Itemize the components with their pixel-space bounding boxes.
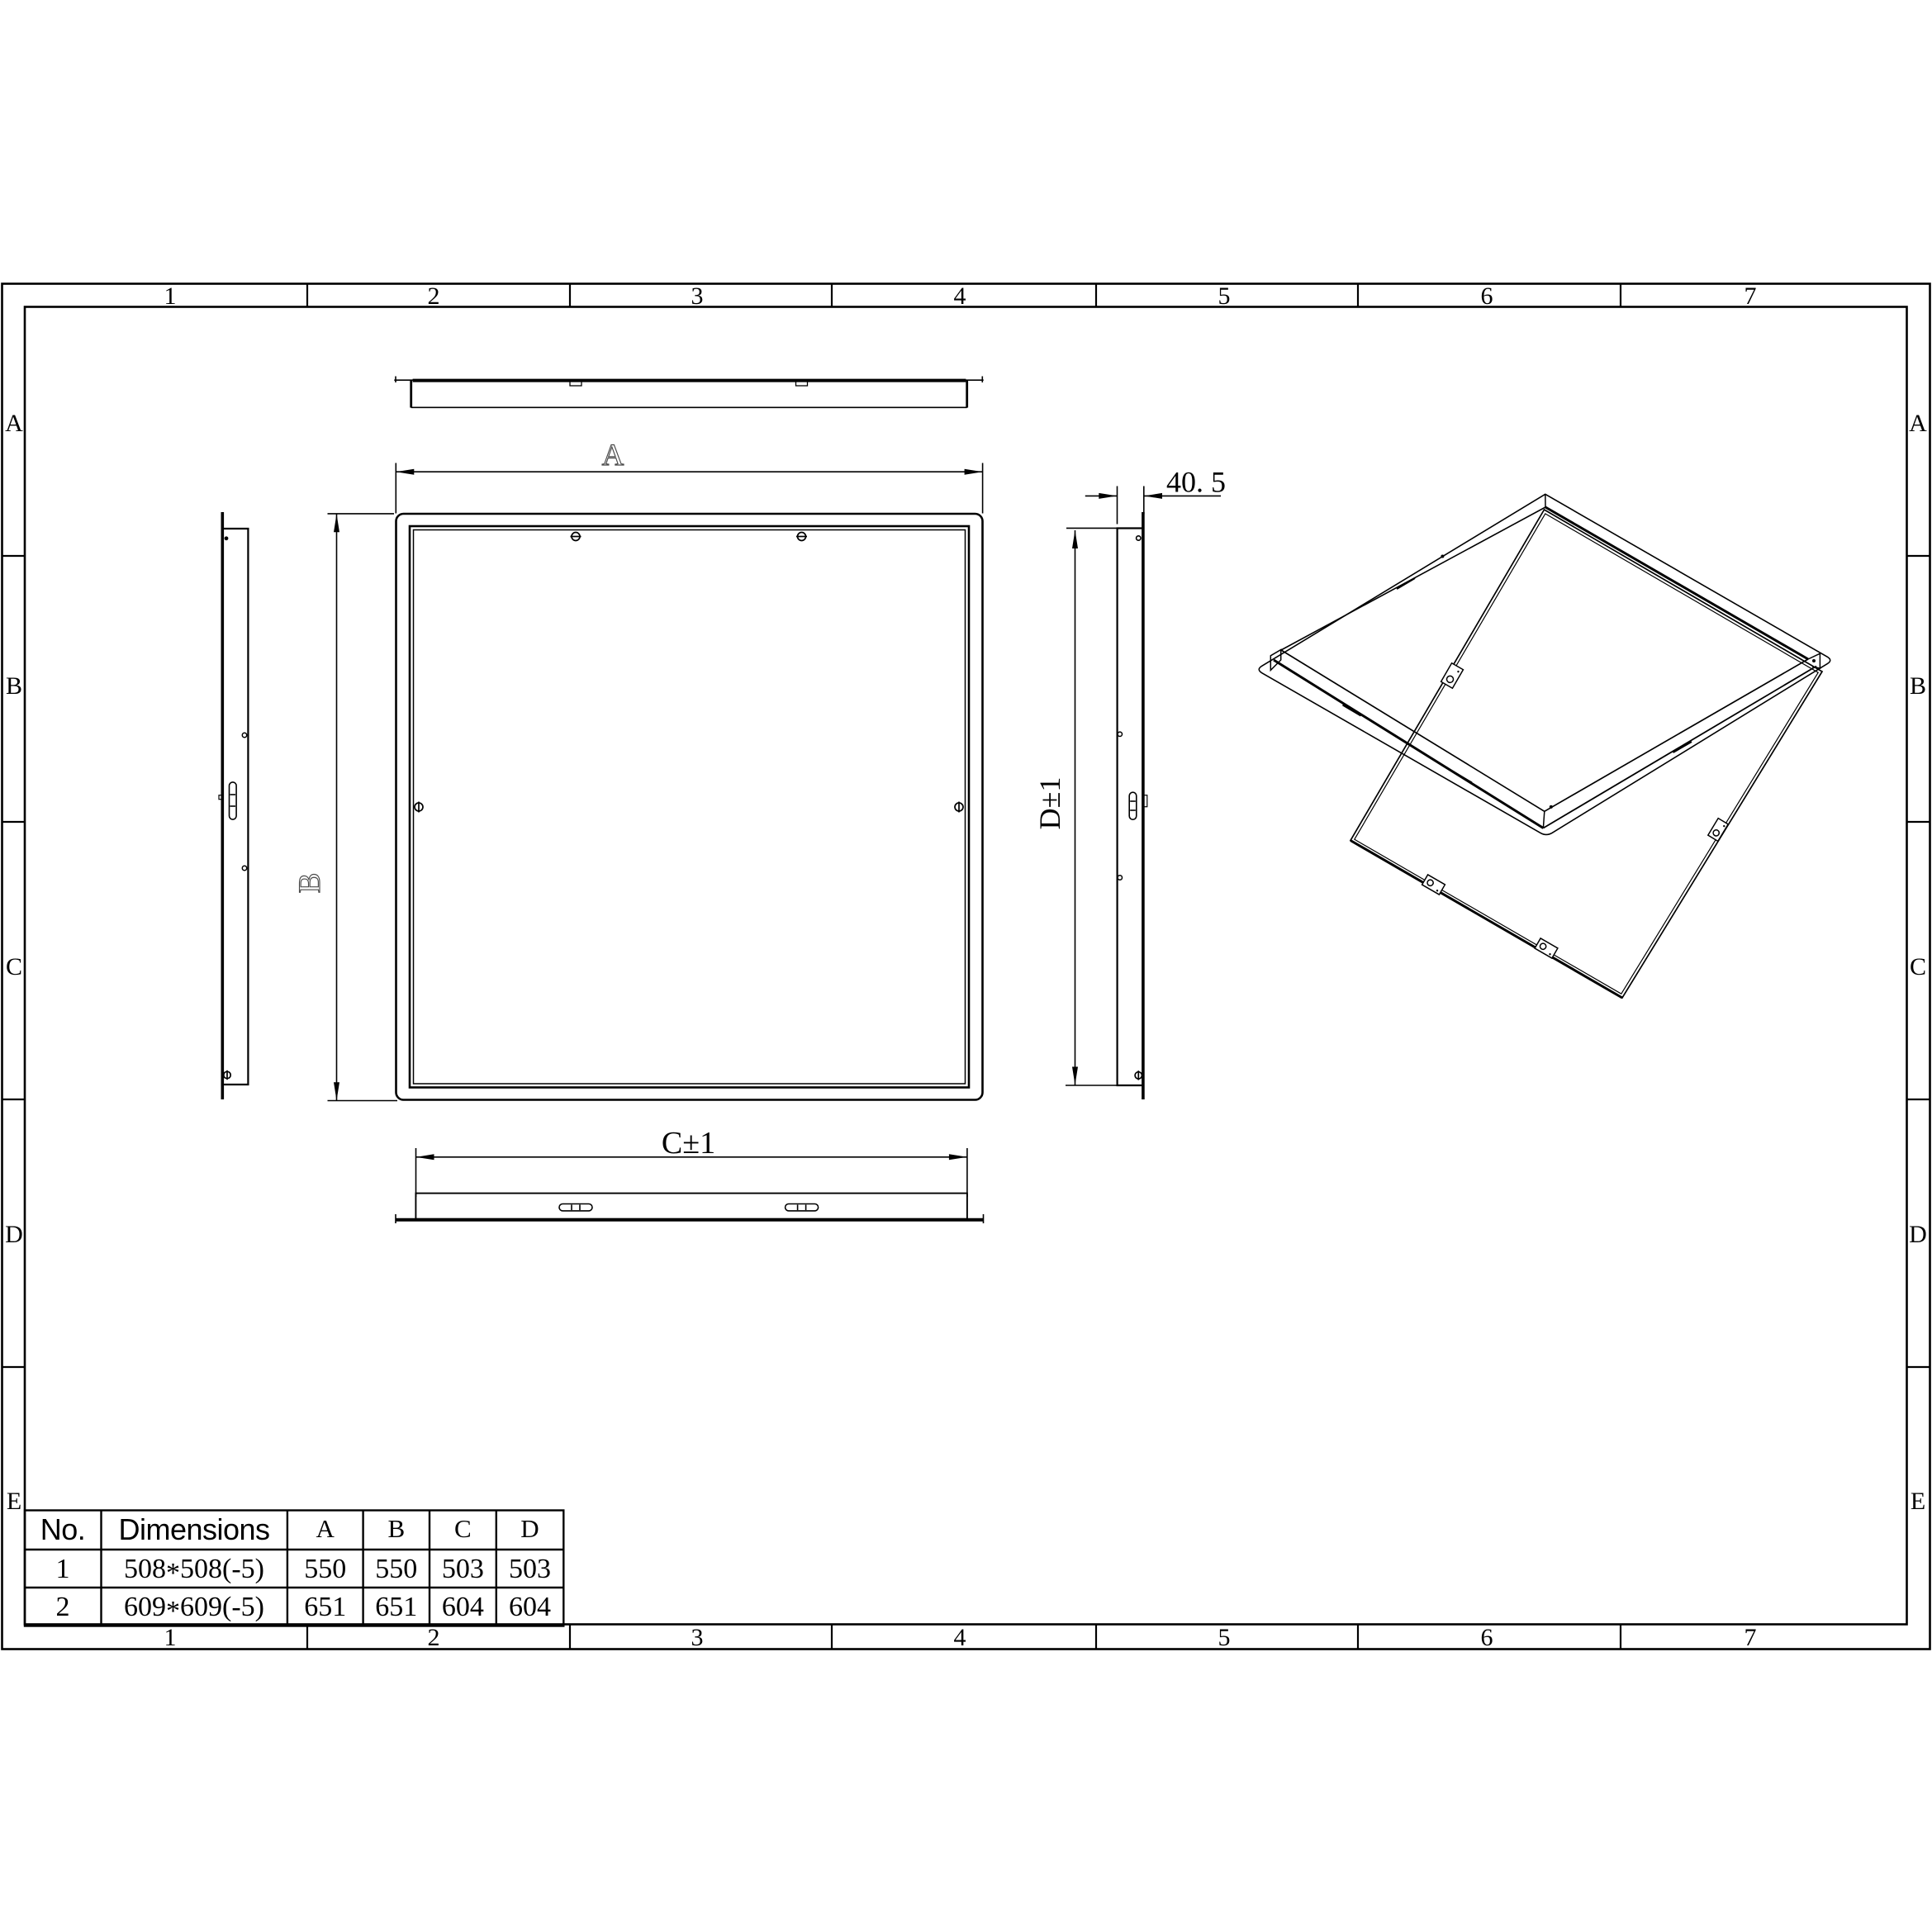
- svg-text:4: 4: [954, 282, 966, 310]
- svg-text:D: D: [520, 1514, 539, 1543]
- svg-text:E: E: [1911, 1488, 1925, 1515]
- svg-text:1: 1: [56, 1554, 70, 1584]
- svg-text:503: 503: [442, 1554, 484, 1584]
- svg-text:B: B: [293, 873, 327, 894]
- svg-text:7: 7: [1744, 1624, 1757, 1651]
- svg-text:651: 651: [375, 1592, 417, 1622]
- svg-text:604: 604: [442, 1592, 484, 1622]
- svg-text:6: 6: [1481, 1624, 1493, 1651]
- svg-text:D: D: [1909, 1221, 1927, 1248]
- svg-text:40. 5: 40. 5: [1166, 466, 1226, 499]
- svg-text:C: C: [1910, 953, 1926, 980]
- svg-text:2: 2: [428, 282, 440, 310]
- svg-text:C: C: [6, 953, 22, 980]
- svg-text:3: 3: [691, 1624, 704, 1651]
- svg-text:A: A: [1909, 410, 1927, 437]
- svg-text:Dimensions: Dimensions: [118, 1512, 269, 1546]
- svg-text:503: 503: [509, 1554, 551, 1584]
- svg-text:5: 5: [1218, 1624, 1231, 1651]
- svg-text:C: C: [454, 1514, 472, 1543]
- svg-text:6: 6: [1481, 282, 1493, 310]
- svg-text:2: 2: [56, 1592, 70, 1622]
- svg-text:609*609(-5): 609*609(-5): [124, 1592, 264, 1626]
- svg-text:E: E: [7, 1488, 21, 1515]
- svg-text:1: 1: [164, 282, 177, 310]
- svg-text:604: 604: [509, 1592, 551, 1622]
- svg-text:3: 3: [691, 282, 704, 310]
- svg-text:550: 550: [375, 1554, 417, 1584]
- svg-text:A: A: [316, 1514, 335, 1543]
- svg-text:651: 651: [304, 1592, 346, 1622]
- svg-text:A: A: [5, 410, 23, 437]
- svg-text:No.: No.: [40, 1512, 86, 1546]
- svg-text:508*508(-5): 508*508(-5): [124, 1554, 264, 1588]
- svg-text:C±1: C±1: [662, 1126, 715, 1161]
- svg-text:D±1: D±1: [1033, 777, 1066, 830]
- svg-text:7: 7: [1744, 282, 1757, 310]
- svg-text:1: 1: [164, 1624, 177, 1651]
- svg-text:B: B: [6, 672, 22, 700]
- svg-text:D: D: [5, 1221, 23, 1248]
- svg-text:2: 2: [428, 1624, 440, 1651]
- svg-text:A: A: [602, 439, 624, 472]
- svg-text:4: 4: [954, 1624, 966, 1651]
- svg-text:5: 5: [1218, 282, 1231, 310]
- svg-text:B: B: [1910, 672, 1926, 700]
- svg-text:B: B: [387, 1514, 405, 1543]
- svg-text:550: 550: [304, 1554, 346, 1584]
